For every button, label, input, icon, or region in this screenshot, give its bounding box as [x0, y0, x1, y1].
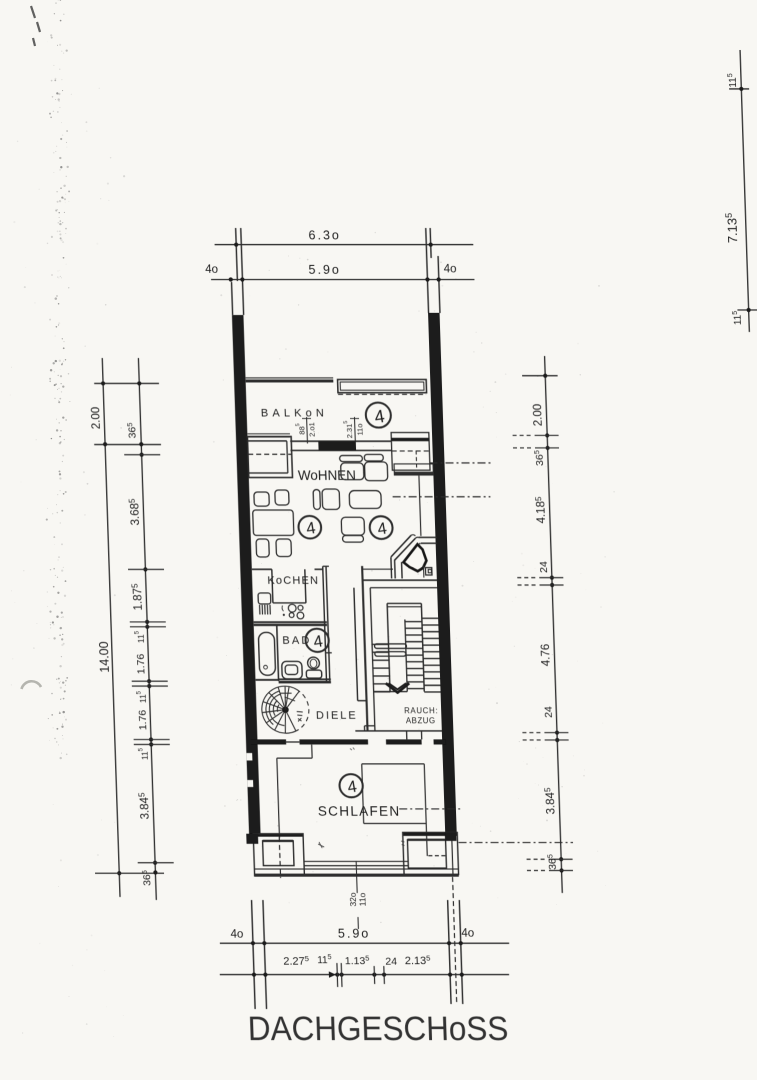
svg-text:4o: 4o — [205, 264, 218, 276]
svg-text:RAUCH:: RAUCH: — [404, 706, 438, 715]
svg-text:4.76: 4.76 — [540, 644, 553, 666]
svg-text:2.o1: 2.o1 — [307, 422, 316, 437]
svg-text:SCHLAFEN: SCHLAFEN — [318, 804, 400, 819]
svg-text:1.76: 1.76 — [136, 710, 149, 731]
svg-text:2.00: 2.00 — [532, 404, 545, 426]
svg-text:DIELE: DIELE — [316, 710, 356, 722]
svg-text:ABZUG: ABZUG — [406, 716, 435, 725]
svg-text:24: 24 — [385, 956, 397, 968]
svg-text:1.76: 1.76 — [135, 654, 148, 675]
svg-text:5.9o: 5.9o — [308, 263, 341, 277]
svg-text:24: 24 — [538, 561, 550, 573]
svg-text:11o: 11o — [357, 892, 367, 906]
svg-text:24: 24 — [542, 706, 554, 718]
svg-text:2.00: 2.00 — [90, 407, 103, 429]
svg-text:4o: 4o — [230, 929, 243, 941]
svg-text:6.3o: 6.3o — [308, 229, 341, 243]
svg-text:WoHNEN: WoHNEN — [298, 468, 356, 483]
svg-text:DACHGESCHoSS: DACHGESCHoSS — [247, 1010, 509, 1048]
svg-text:4o: 4o — [443, 264, 456, 276]
svg-text:14.00: 14.00 — [97, 641, 112, 672]
svg-text:4o: 4o — [461, 928, 474, 940]
svg-text:11o: 11o — [355, 424, 364, 436]
svg-text:5.9o: 5.9o — [338, 927, 371, 941]
